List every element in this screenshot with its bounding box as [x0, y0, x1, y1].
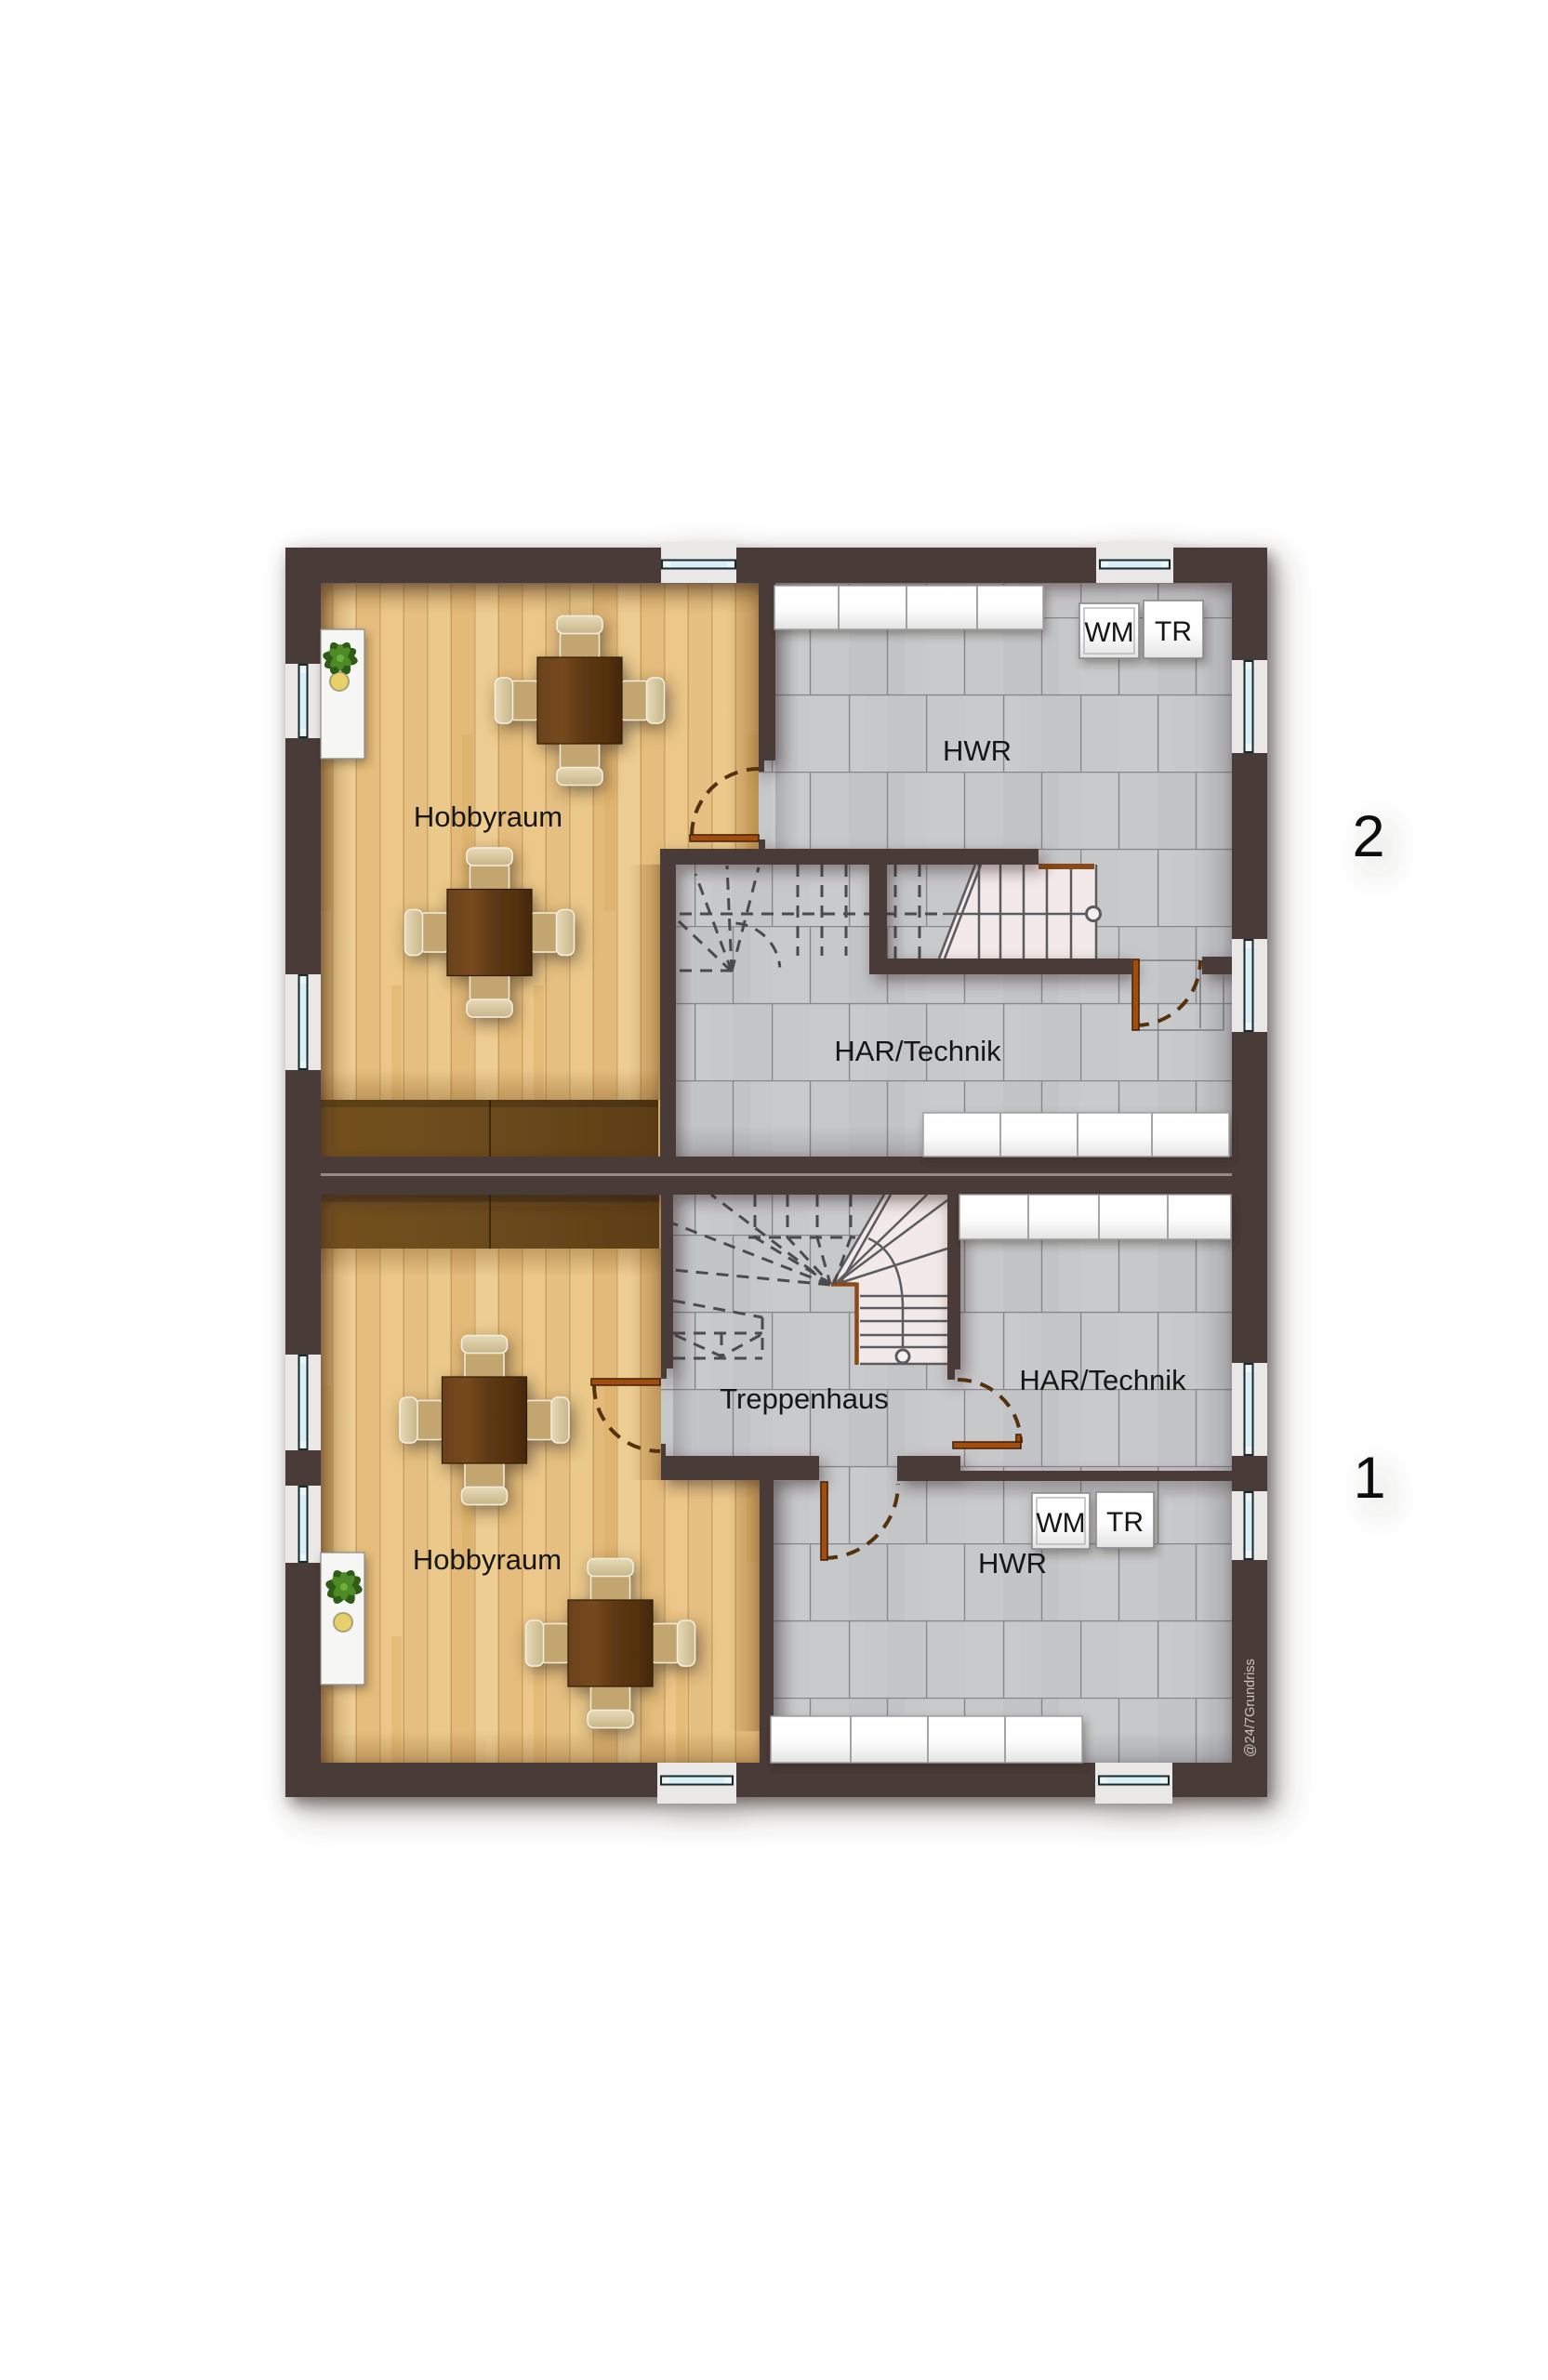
svg-text:WM: WM	[1084, 617, 1133, 648]
svg-text:Hobbyraum: Hobbyraum	[413, 1543, 562, 1576]
svg-text:HWR: HWR	[943, 734, 1012, 767]
svg-text:Hobbyraum: Hobbyraum	[414, 800, 562, 833]
svg-text:HAR/Technik: HAR/Technik	[834, 1035, 1001, 1067]
svg-text:@24/7Grundriss: @24/7Grundriss	[1243, 1659, 1258, 1757]
svg-text:HAR/Technik: HAR/Technik	[1019, 1364, 1186, 1396]
svg-text:2: 2	[1352, 804, 1384, 869]
svg-text:WM: WM	[1036, 1508, 1085, 1539]
svg-text:Treppenhaus: Treppenhaus	[720, 1382, 889, 1415]
svg-text:TR: TR	[1106, 1507, 1144, 1538]
svg-text:HWR: HWR	[978, 1547, 1047, 1580]
svg-text:1: 1	[1353, 1446, 1385, 1511]
svg-text:TR: TR	[1155, 616, 1192, 647]
